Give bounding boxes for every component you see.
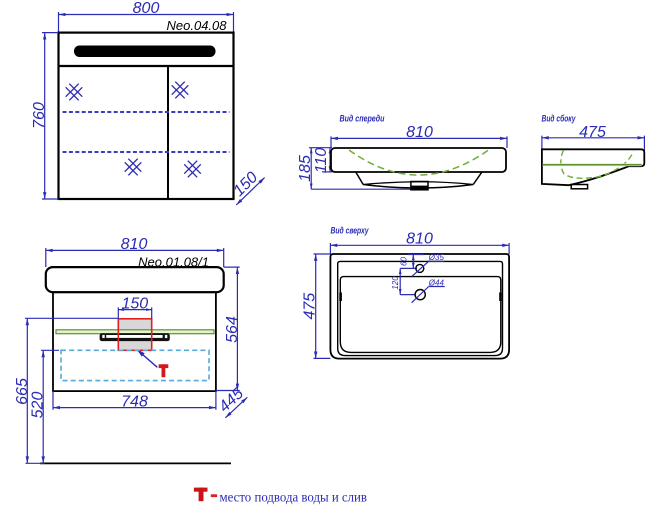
svg-text:800: 800 bbox=[133, 0, 160, 17]
svg-text:760: 760 bbox=[31, 102, 48, 129]
svg-text:место подвода воды и слив: место подвода воды и слив bbox=[220, 490, 368, 505]
svg-text:475: 475 bbox=[302, 293, 319, 320]
svg-text:Вид спереди: Вид спереди bbox=[340, 113, 385, 123]
svg-text:Neo.04.08: Neo.04.08 bbox=[167, 18, 228, 33]
svg-text:150: 150 bbox=[121, 296, 148, 313]
svg-text:810: 810 bbox=[406, 230, 433, 247]
svg-text:Вид сбоку: Вид сбоку bbox=[542, 114, 577, 124]
svg-text:748: 748 bbox=[121, 393, 148, 410]
svg-text:110: 110 bbox=[313, 148, 330, 174]
svg-text:Ø35: Ø35 bbox=[428, 253, 445, 262]
svg-text:564: 564 bbox=[224, 316, 241, 343]
svg-text:60: 60 bbox=[400, 257, 409, 266]
svg-text:185: 185 bbox=[297, 155, 314, 182]
svg-text:665: 665 bbox=[14, 378, 31, 405]
svg-text:475: 475 bbox=[579, 124, 606, 141]
svg-text:120: 120 bbox=[391, 276, 400, 290]
svg-text:Вид сверху: Вид сверху bbox=[331, 225, 370, 235]
svg-text:520: 520 bbox=[30, 392, 47, 419]
svg-text:810: 810 bbox=[121, 236, 148, 253]
svg-text:Ø44: Ø44 bbox=[428, 278, 445, 287]
svg-text:810: 810 bbox=[406, 124, 433, 141]
